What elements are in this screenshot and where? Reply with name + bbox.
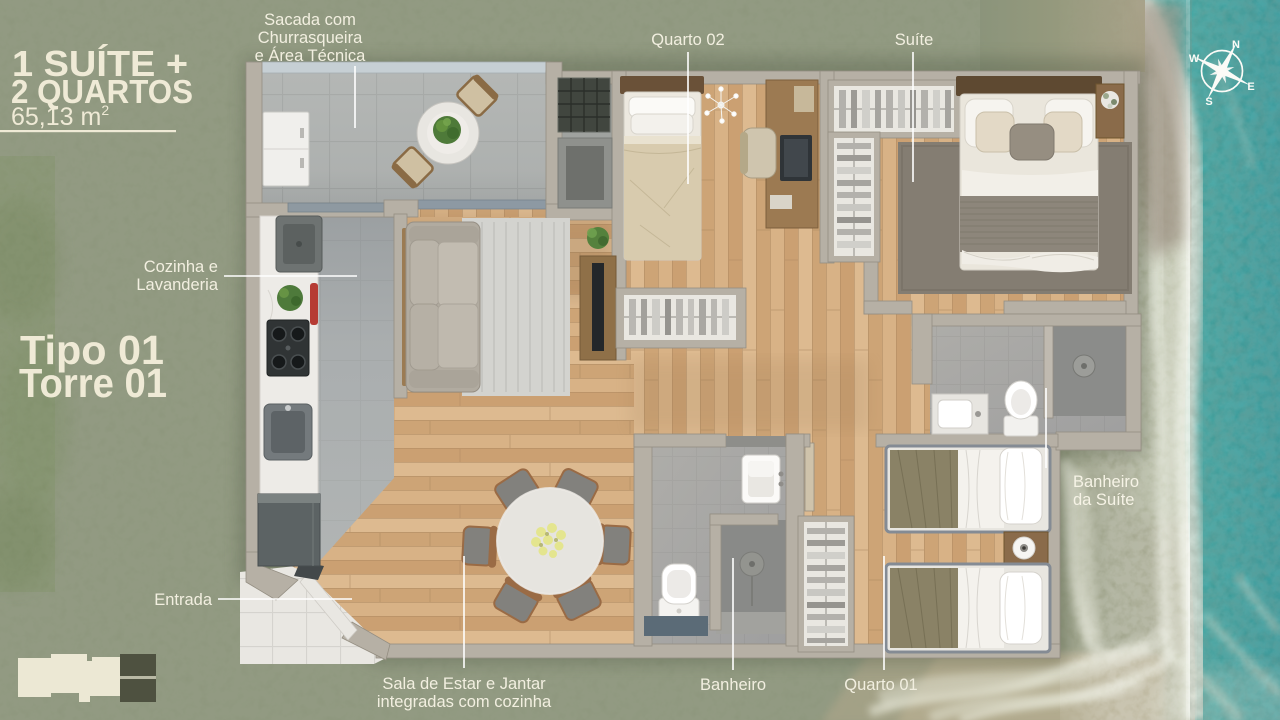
svg-text:Sacada com: Sacada com: [264, 11, 356, 29]
svg-text:integradas com cozinha: integradas com cozinha: [377, 693, 552, 711]
svg-text:Entrada: Entrada: [154, 591, 213, 609]
svg-text:N: N: [1232, 39, 1240, 51]
svg-text:e Área Técnica: e Área Técnica: [255, 46, 366, 65]
svg-text:Churrasqueira: Churrasqueira: [258, 29, 363, 47]
svg-text:Torre 01: Torre 01: [19, 360, 167, 406]
svg-text:Banheiro: Banheiro: [700, 676, 766, 694]
svg-text:Lavanderia: Lavanderia: [136, 276, 218, 294]
svg-text:E: E: [1247, 81, 1254, 93]
svg-text:da Suíte: da Suíte: [1073, 491, 1134, 509]
svg-text:Quarto 01: Quarto 01: [844, 676, 917, 694]
svg-text:Quarto 02: Quarto 02: [651, 31, 724, 49]
svg-text:S: S: [1205, 96, 1212, 108]
svg-text:Cozinha e: Cozinha e: [144, 258, 218, 276]
svg-text:Sala de Estar e Jantar: Sala de Estar e Jantar: [382, 675, 546, 693]
svg-text:Banheiro: Banheiro: [1073, 473, 1139, 491]
svg-text:W: W: [1189, 53, 1200, 65]
svg-text:Suíte: Suíte: [895, 31, 934, 49]
svg-text:65,13 m2: 65,13 m2: [11, 102, 109, 131]
